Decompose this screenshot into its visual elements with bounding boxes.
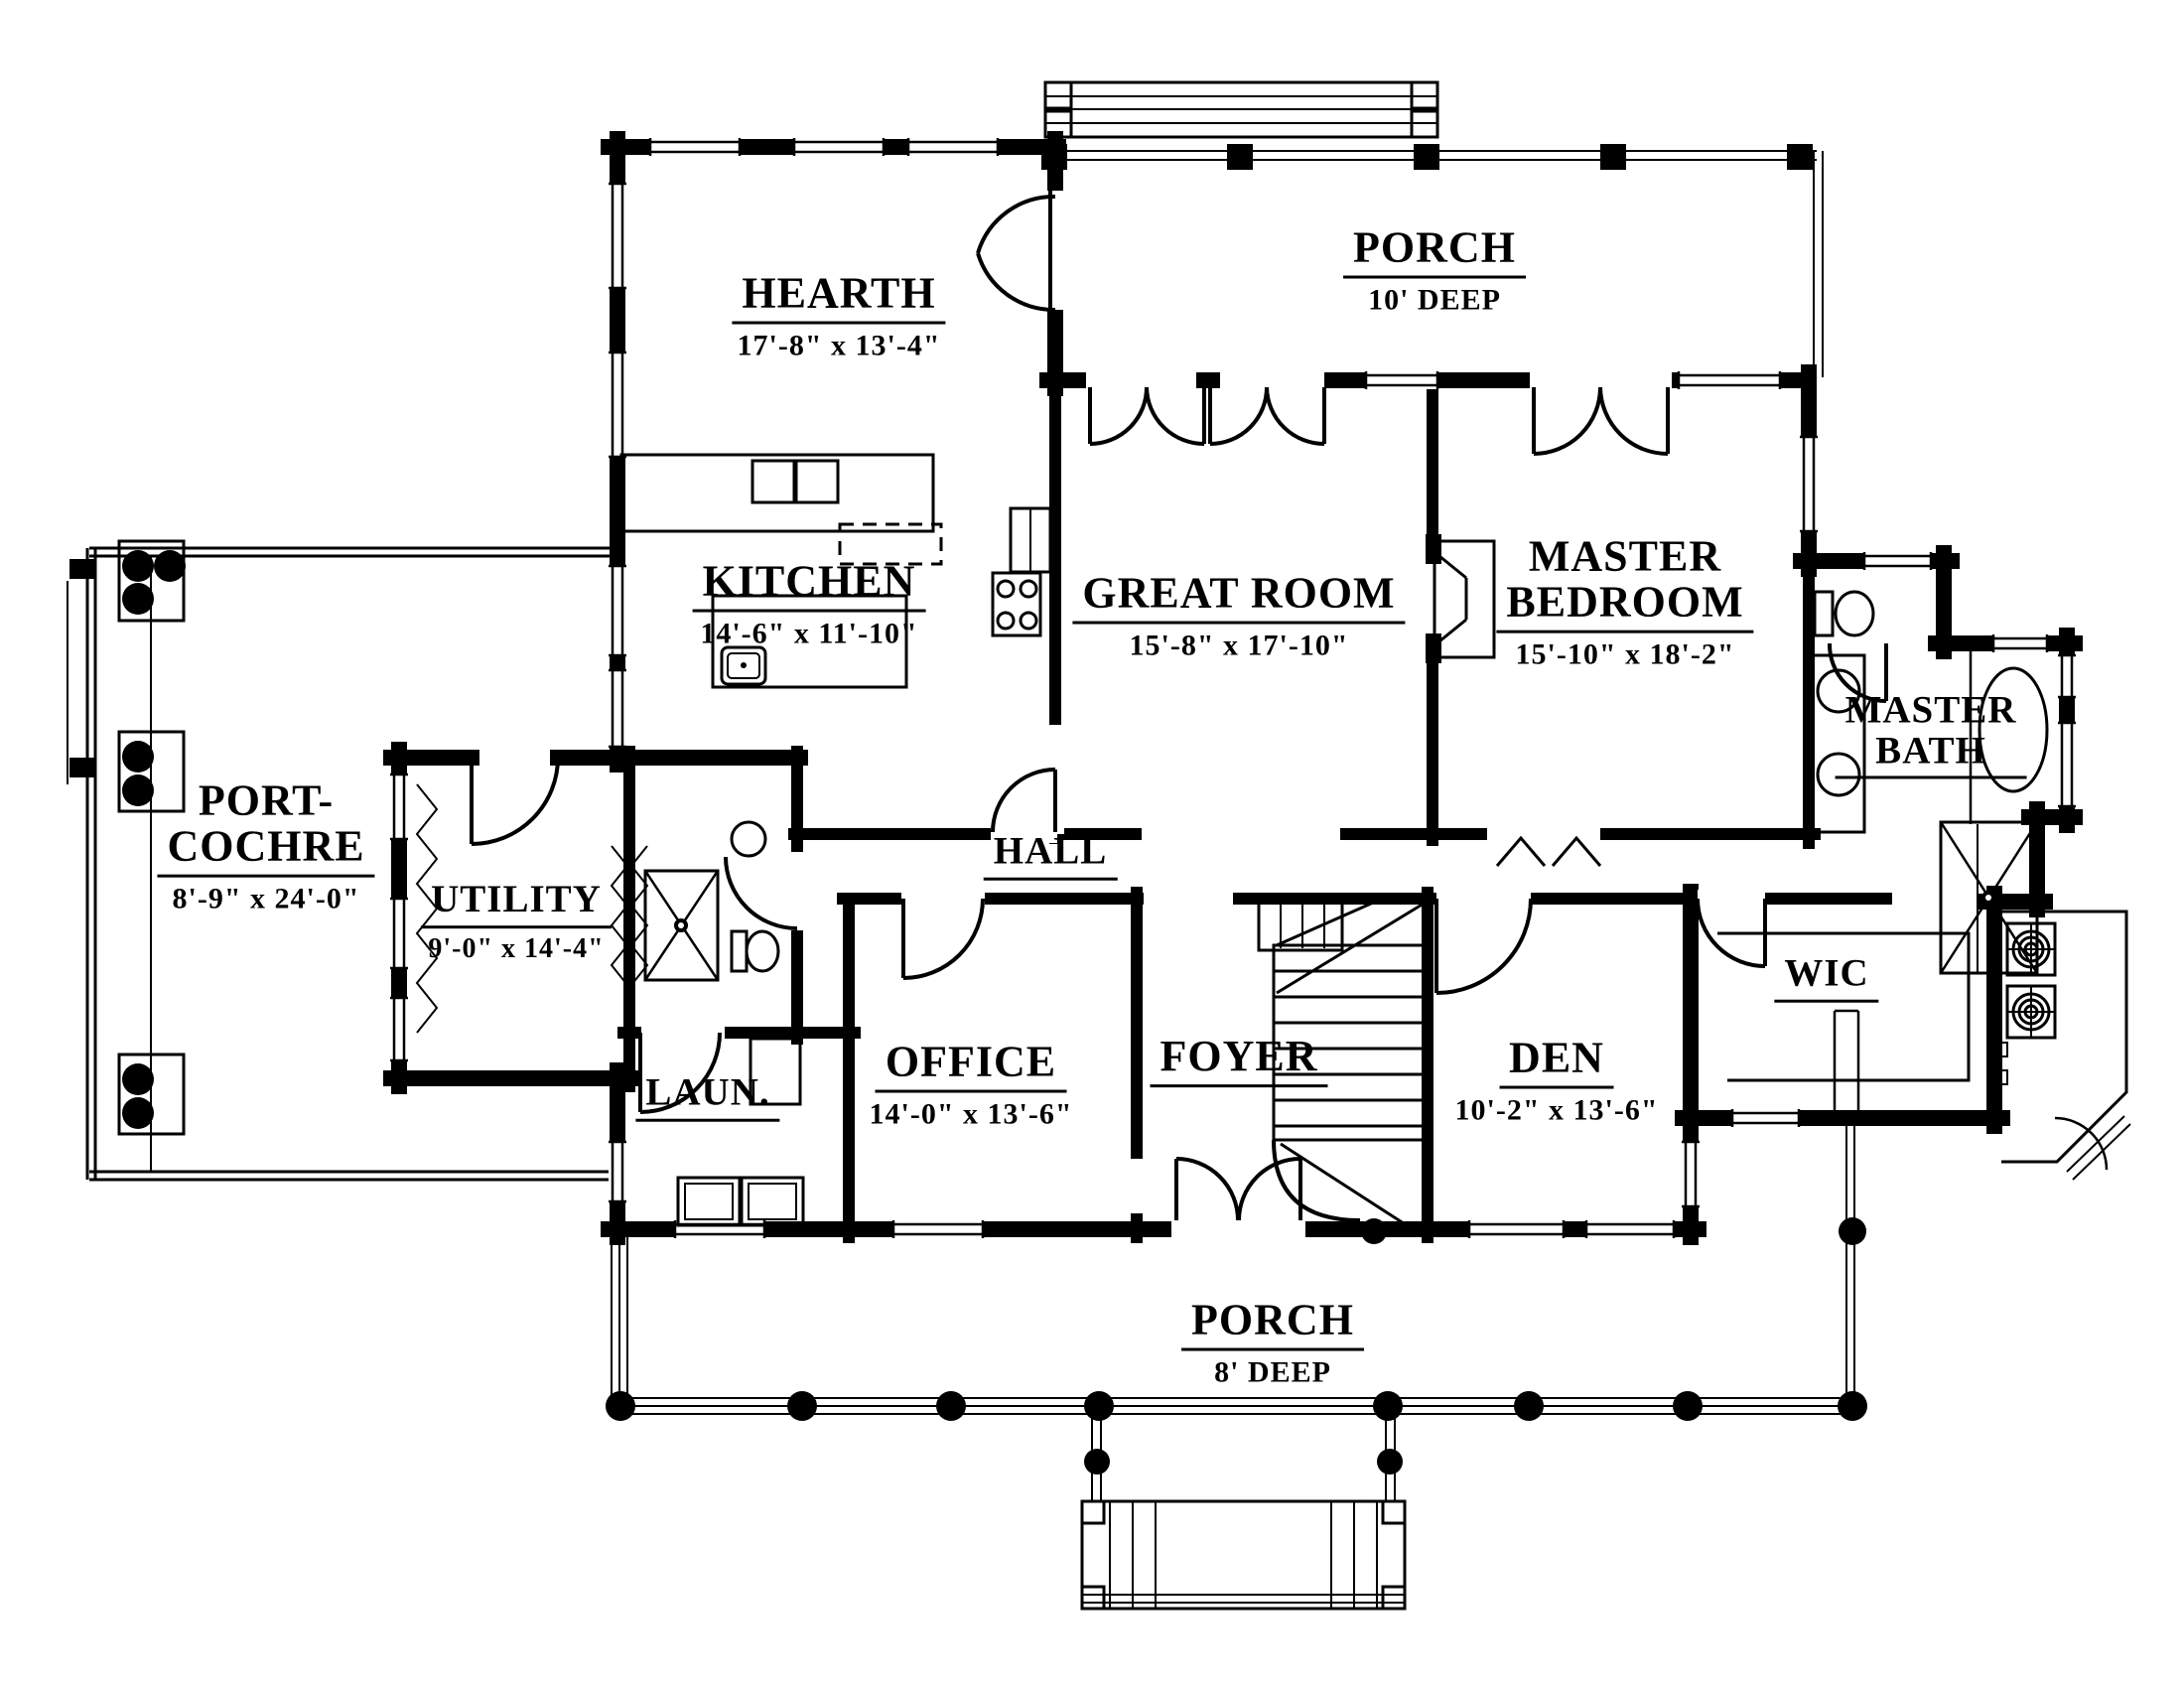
- room-name-foyer: FOYER: [1151, 1034, 1328, 1087]
- room-dims-kitchen: 14'-6" x 11'-10": [693, 618, 926, 648]
- room-label-master-bath: MASTER BATH: [1836, 690, 2027, 778]
- room-label-port-cochre: PORT- COCHRE8'-9" x 24'-0": [157, 778, 374, 914]
- room-label-porch-top: PORCH10' DEEP: [1343, 225, 1526, 316]
- room-name-master-bedroom: MASTER BEDROOM: [1496, 534, 1753, 633]
- room-label-kitchen: KITCHEN14'-6" x 11'-10": [693, 559, 926, 649]
- room-name-kitchen: KITCHEN: [693, 559, 926, 613]
- floor-plan-canvas: HEARTH17'-8" x 13'-4"PORCH10' DEEPKITCHE…: [0, 0, 2184, 1688]
- room-name-porch-bottom: PORCH: [1181, 1298, 1364, 1351]
- room-name-laundry: LAUN.: [635, 1073, 779, 1122]
- room-name-wic: WIC: [1774, 954, 1878, 1003]
- room-label-master-bedroom: MASTER BEDROOM15'-10" x 18'-2": [1496, 534, 1753, 670]
- room-name-den: DEN: [1499, 1036, 1614, 1089]
- room-label-foyer: FOYER: [1151, 1034, 1328, 1087]
- room-dims-porch-top: 10' DEEP: [1343, 284, 1526, 315]
- room-label-porch-bottom: PORCH8' DEEP: [1181, 1298, 1364, 1388]
- room-name-master-bath: MASTER BATH: [1836, 690, 2027, 778]
- room-label-laundry: LAUN.: [635, 1073, 779, 1122]
- room-dims-port-cochre: 8'-9" x 24'-0": [157, 883, 374, 914]
- room-dims-office: 14'-0" x 13'-6": [870, 1098, 1073, 1129]
- room-name-office: OFFICE: [876, 1040, 1066, 1093]
- room-label-den: DEN10'-2" x 13'-6": [1455, 1036, 1659, 1126]
- room-dims-porch-bottom: 8' DEEP: [1181, 1356, 1364, 1387]
- room-dims-den: 10'-2" x 13'-6": [1455, 1094, 1659, 1125]
- room-label-wic: WIC: [1774, 954, 1878, 1003]
- room-name-hearth: HEARTH: [732, 271, 945, 325]
- room-dims-utility: 9'-0" x 14'-4": [421, 934, 612, 963]
- room-label-hall: HALL: [984, 832, 1118, 881]
- room-name-porch-top: PORCH: [1343, 225, 1526, 279]
- room-name-great-room: GREAT ROOM: [1072, 571, 1405, 625]
- room-labels-layer: HEARTH17'-8" x 13'-4"PORCH10' DEEPKITCHE…: [0, 0, 2184, 1688]
- room-label-office: OFFICE14'-0" x 13'-6": [870, 1040, 1073, 1130]
- room-name-utility: UTILITY: [421, 880, 612, 928]
- room-name-port-cochre: PORT- COCHRE: [157, 778, 374, 878]
- room-label-great-room: GREAT ROOM15'-8" x 17'-10": [1072, 571, 1405, 661]
- room-dims-great-room: 15'-8" x 17'-10": [1072, 630, 1405, 660]
- room-label-utility: UTILITY9'-0" x 14'-4": [421, 880, 612, 963]
- room-name-hall: HALL: [984, 832, 1118, 881]
- room-label-hearth: HEARTH17'-8" x 13'-4": [732, 271, 945, 361]
- room-dims-hearth: 17'-8" x 13'-4": [732, 330, 945, 360]
- room-dims-master-bedroom: 15'-10" x 18'-2": [1496, 638, 1753, 669]
